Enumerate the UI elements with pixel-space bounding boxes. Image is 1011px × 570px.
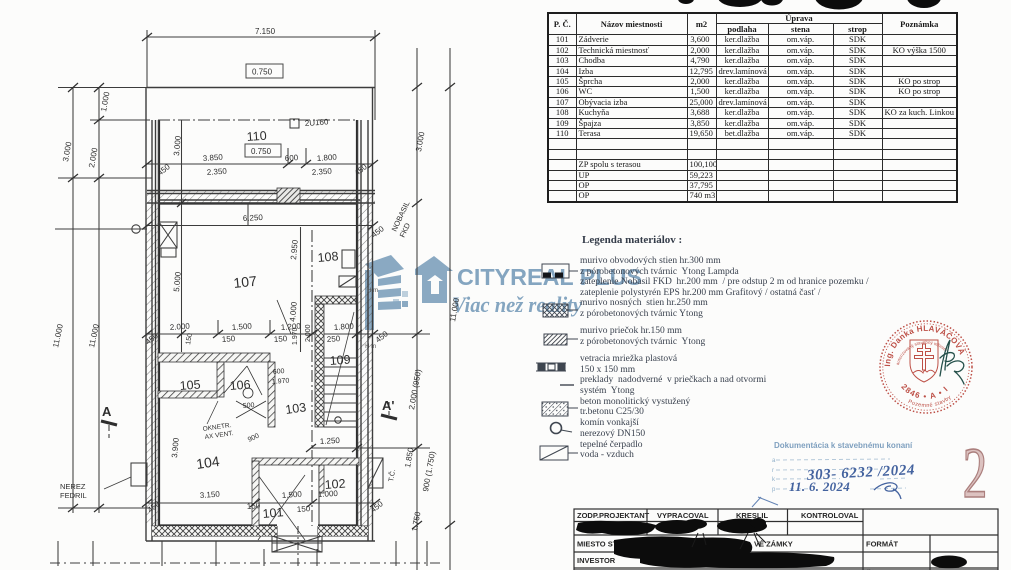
svg-text:900: 900 <box>247 432 261 443</box>
svg-text:104: 104 <box>195 453 221 472</box>
svg-text:VYPRACOVAL: VYPRACOVAL <box>657 511 709 520</box>
svg-text:⁻H m: ⁻H m <box>364 288 378 294</box>
svg-text:KONTROLOVAL: KONTROLOVAL <box>801 511 859 520</box>
svg-text:150: 150 <box>297 504 311 514</box>
svg-text:2.000: 2.000 <box>170 322 191 332</box>
svg-text:3.000: 3.000 <box>414 131 426 153</box>
svg-text:1.500: 1.500 <box>232 322 253 332</box>
svg-text:FEDRIL: FEDRIL <box>60 491 87 500</box>
svg-text:250: 250 <box>327 334 341 344</box>
svg-text:2.000: 2.000 <box>305 324 312 342</box>
svg-text:5.000: 5.000 <box>172 271 183 292</box>
svg-text:101: 101 <box>262 505 284 521</box>
svg-text:3.150: 3.150 <box>200 490 221 500</box>
svg-text:108: 108 <box>317 249 339 265</box>
svg-text:T.Č.: T.Č. <box>386 468 397 482</box>
svg-text:106: 106 <box>229 378 251 393</box>
svg-text:2846 • A • I: 2846 • A • I <box>899 382 950 401</box>
svg-text:107: 107 <box>233 273 258 291</box>
svg-text:FORMÁT: FORMÁT <box>866 540 898 549</box>
svg-text:1.250: 1.250 <box>320 436 341 446</box>
svg-text:ZODP.PROJEKTANT: ZODP.PROJEKTANT <box>577 511 650 520</box>
svg-text:4.000: 4.000 <box>288 301 299 322</box>
svg-text:2.350: 2.350 <box>312 167 333 177</box>
svg-text:150: 150 <box>274 334 288 344</box>
svg-text:109: 109 <box>329 353 351 368</box>
svg-text:1.970: 1.970 <box>292 327 299 345</box>
svg-text:1.800: 1.800 <box>317 153 338 163</box>
svg-text:1.850: 1.850 <box>403 447 415 469</box>
svg-text:3.850: 3.850 <box>203 153 224 163</box>
svg-text:150: 150 <box>222 334 236 344</box>
svg-text:1.500: 1.500 <box>282 490 303 500</box>
svg-text:2.350: 2.350 <box>207 167 228 177</box>
svg-text:a: a <box>772 458 776 464</box>
svg-text:2.000: 2.000 <box>87 147 99 169</box>
svg-text:1.970: 1.970 <box>272 377 290 386</box>
svg-text:1.000: 1.000 <box>99 91 111 113</box>
svg-text:p: p <box>772 487 776 493</box>
svg-text:1.750: 1.750 <box>410 511 422 533</box>
svg-text:6.250: 6.250 <box>243 213 264 223</box>
svg-text:600: 600 <box>285 153 299 163</box>
svg-text:600: 600 <box>273 368 285 376</box>
svg-text:1.800: 1.800 <box>334 322 355 332</box>
svg-text:0.750: 0.750 <box>251 147 272 156</box>
svg-text:MIESTO ST: MIESTO ST <box>577 540 618 549</box>
svg-text:103: 103 <box>284 400 307 417</box>
svg-text:VÉ ZÁMKY: VÉ ZÁMKY <box>754 540 793 549</box>
svg-text:500: 500 <box>243 402 255 410</box>
svg-text:r: r <box>772 468 774 474</box>
svg-text:NEREZ: NEREZ <box>60 482 86 491</box>
svg-text:2U160: 2U160 <box>305 117 330 128</box>
svg-text:0.750: 0.750 <box>252 68 273 77</box>
svg-text:11.000: 11.000 <box>51 323 65 349</box>
svg-text:A': A' <box>382 398 394 413</box>
svg-text:INVESTOR: INVESTOR <box>577 556 616 565</box>
svg-text:1.000: 1.000 <box>318 489 339 499</box>
svg-text:A: A <box>102 404 112 419</box>
svg-text:3.000: 3.000 <box>61 141 73 163</box>
svg-text:150: 150 <box>247 501 261 511</box>
svg-text:110: 110 <box>246 129 267 144</box>
svg-text:autorizovaný stavebný inžinier: autorizovaný stavebný inžinier <box>895 340 949 366</box>
svg-text:3.000: 3.000 <box>172 135 183 156</box>
svg-text:k: k <box>772 477 776 483</box>
svg-text:2: 2 <box>963 443 987 503</box>
svg-text:105: 105 <box>179 378 201 393</box>
svg-text:2.950: 2.950 <box>289 239 300 260</box>
svg-text:3.900: 3.900 <box>170 437 181 458</box>
svg-text:900 (1.750): 900 (1.750) <box>421 450 437 492</box>
svg-text:7.150: 7.150 <box>255 27 276 36</box>
svg-text:⁻H m: ⁻H m <box>362 344 376 350</box>
svg-text:2.000 (950): 2.000 (950) <box>407 368 423 410</box>
svg-text:150: 150 <box>185 333 194 346</box>
